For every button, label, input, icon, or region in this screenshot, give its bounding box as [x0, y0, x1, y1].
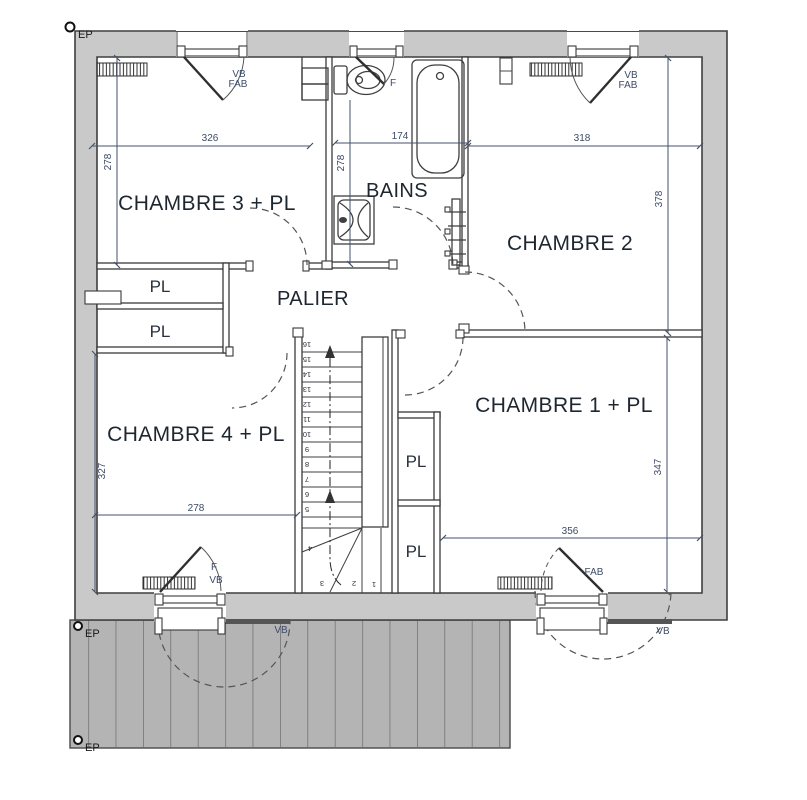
window-jamb	[239, 46, 247, 57]
stair-number: 4	[308, 544, 312, 553]
stair-number: 2	[352, 579, 356, 588]
stair-number: 14	[303, 370, 311, 379]
label-fab: FAB	[585, 567, 604, 578]
radiator-chambre2	[530, 63, 582, 76]
stair-up-line	[330, 353, 341, 585]
ep-circle-icon	[74, 736, 82, 744]
bathtub-inner	[417, 65, 459, 173]
window-outer-sill	[540, 608, 604, 630]
door-swing-bains	[393, 207, 453, 267]
stair-up-arrow	[325, 490, 335, 503]
wall-pl-east	[223, 263, 229, 353]
jamb	[226, 347, 233, 356]
radiator-chambre1	[498, 577, 552, 589]
window-jamb	[217, 594, 225, 605]
stair-number: 7	[305, 475, 309, 484]
label-vb: VB	[209, 575, 223, 586]
door-swing-chambre3	[250, 208, 307, 265]
window-outer-sill	[158, 608, 222, 630]
dim-bains-width: 174	[392, 131, 409, 142]
stair-number: 6	[305, 490, 309, 499]
dim-chambre3-height: 278	[103, 153, 114, 170]
window-jamb	[630, 46, 638, 57]
ep-circle-icon	[74, 622, 82, 630]
window-post	[600, 618, 607, 634]
label-ep: EP	[78, 29, 93, 41]
door-swing-chambre1	[405, 337, 463, 395]
shutter-housing-left	[225, 619, 290, 624]
dim-chambre1-width: 356	[562, 526, 579, 537]
label-ep: EP	[85, 742, 100, 754]
stair-number: 3	[320, 579, 324, 588]
label-chambre2: CHAMBRE 2	[507, 232, 633, 255]
washbasin-curve	[358, 203, 368, 237]
label-chambre3: CHAMBRE 3 + PL	[118, 192, 296, 215]
label-pl: PL	[150, 322, 171, 341]
floor-plan-drawing: 16 15 14 13 12 11 10 9 8 7 6 5 4 3 2 1 3…	[0, 0, 807, 800]
label-vb: VB	[656, 626, 670, 637]
towel-bracket	[445, 229, 450, 234]
dim-chambre2-height: 378	[654, 190, 665, 207]
label-chambre4: CHAMBRE 4 + PL	[107, 423, 285, 446]
jamb	[303, 261, 309, 271]
stair-number: 9	[305, 445, 309, 454]
dim-chambre4-height: 327	[97, 462, 108, 479]
dim-chambre4-width: 278	[188, 503, 205, 514]
window-sill	[184, 49, 240, 56]
label-pl: PL	[406, 452, 427, 471]
stair-number: 1	[372, 580, 376, 589]
window-jamb	[537, 594, 545, 605]
floor-plan: 16 15 14 13 12 11 10 9 8 7 6 5 4 3 2 1 3…	[0, 0, 807, 800]
wall-stairs-east	[392, 330, 398, 593]
wall-bains-south-left	[332, 262, 393, 268]
bathtub-drain	[437, 73, 444, 80]
washbasin-tap	[339, 217, 347, 223]
towel-bracket	[445, 207, 450, 212]
stair-well	[362, 337, 388, 527]
wall-pl-divider2	[398, 500, 440, 506]
stair-number: 5	[305, 505, 309, 514]
window-jamb	[350, 46, 357, 57]
stair-number: 11	[303, 415, 311, 424]
window-post	[218, 618, 225, 634]
toilet-tank-icon	[334, 66, 347, 94]
window-sill	[162, 596, 218, 603]
jamb	[293, 328, 303, 337]
label-bains: BAINS	[366, 180, 428, 202]
towel-radiator-icon	[452, 199, 460, 265]
stair-number: 16	[303, 340, 311, 349]
dim-chambre1-height: 347	[653, 458, 664, 475]
window-jamb	[155, 594, 163, 605]
label-pl: PL	[406, 542, 427, 561]
stair-number: 10	[303, 430, 311, 439]
jamb	[322, 261, 332, 269]
window-post	[537, 618, 544, 634]
jamb	[389, 260, 397, 269]
label-fab: FAB	[619, 80, 638, 91]
stair-number: 12	[303, 400, 311, 409]
dim-bains-height: 278	[336, 154, 347, 171]
deck-planks	[70, 620, 510, 748]
ep-circle-icon	[66, 23, 75, 32]
window-sill	[575, 49, 631, 56]
wall-niche	[85, 291, 121, 304]
window-sill	[544, 596, 600, 603]
dim-chambre3-width: 326	[202, 133, 219, 144]
wall-middle-east	[462, 330, 702, 337]
label-fab: FAB	[229, 79, 248, 90]
label-f: F	[211, 562, 217, 573]
exterior-walls	[75, 31, 727, 620]
label-chambre1: CHAMBRE 1 + PL	[475, 394, 653, 417]
shelf-icon	[302, 68, 328, 84]
window-jamb	[599, 594, 607, 605]
stair-number: 8	[305, 460, 309, 469]
window-jamb	[177, 46, 185, 57]
toilet-bowl-inner	[356, 72, 380, 89]
wall-bains-west	[326, 57, 332, 269]
label-palier: PALIER	[277, 288, 349, 310]
jamb	[246, 261, 253, 271]
jamb	[396, 330, 405, 338]
window-casement	[184, 57, 223, 100]
dim-chambre2-width: 318	[574, 133, 591, 144]
label-vb: VB	[274, 625, 288, 636]
wall-chambre4-north	[97, 347, 232, 353]
terrace-deck	[70, 620, 510, 748]
label-f: F	[390, 78, 396, 89]
shutter-housing-right	[607, 619, 672, 624]
stair-number: 13	[303, 385, 311, 394]
towel-bracket	[445, 251, 450, 256]
shelf-icon	[302, 84, 328, 100]
window-post	[155, 618, 162, 634]
stair-number: 15	[303, 355, 311, 364]
jamb	[459, 266, 469, 274]
label-pl: PL	[150, 277, 171, 296]
radiator-chambre3	[97, 63, 147, 76]
window-jamb	[568, 46, 576, 57]
door-swing-chambre2	[465, 272, 525, 332]
door-swing-chambre4	[232, 353, 287, 408]
label-ep: EP	[85, 628, 100, 640]
stair-winder-edge	[330, 528, 362, 592]
wall-stairs-west	[295, 330, 302, 593]
bathtub-icon	[412, 60, 464, 178]
jamb	[456, 330, 464, 338]
window-sill	[356, 49, 396, 56]
staircase: 16 15 14 13 12 11 10 9 8 7 6 5 4 3 2 1	[302, 337, 388, 593]
window-jamb	[396, 46, 403, 57]
